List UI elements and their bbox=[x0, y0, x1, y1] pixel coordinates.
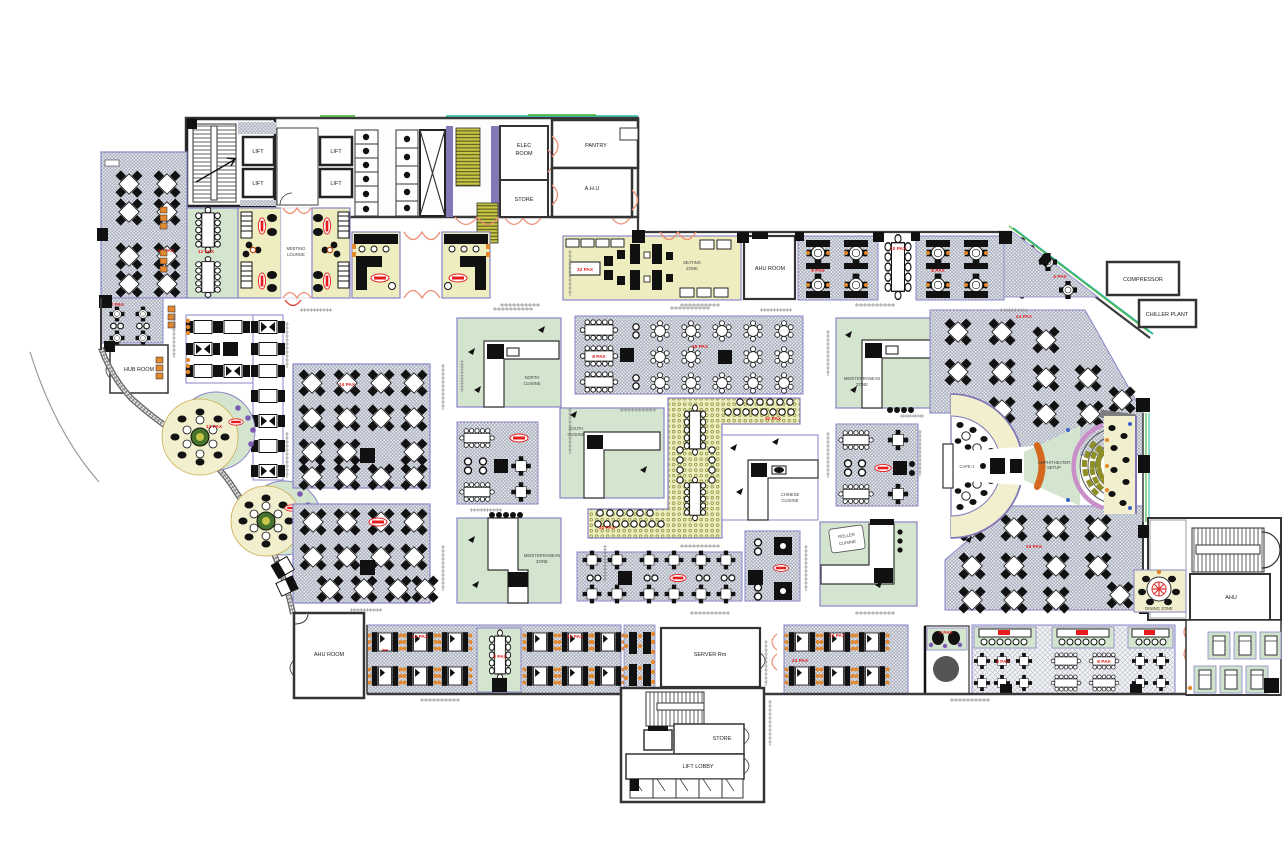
svg-text:SEATING: SEATING bbox=[683, 260, 701, 265]
svg-text:COMPRESSOR: COMPRESSOR bbox=[1123, 277, 1163, 283]
svg-text:8 PAX: 8 PAX bbox=[931, 268, 945, 274]
svg-text:32 PAX: 32 PAX bbox=[577, 267, 594, 273]
svg-text:MEDITERRANEAN: MEDITERRANEAN bbox=[844, 376, 880, 381]
svg-text:48 PAX: 48 PAX bbox=[692, 344, 709, 350]
svg-text:CAFE-1: CAFE-1 bbox=[960, 464, 976, 469]
svg-text:LIFT LOBBY: LIFT LOBBY bbox=[682, 764, 713, 770]
svg-text:32 PAX: 32 PAX bbox=[765, 416, 782, 422]
svg-text:12 PAX: 12 PAX bbox=[412, 634, 429, 640]
svg-text:PANTRY: PANTRY bbox=[585, 143, 607, 149]
svg-text:24 PAX: 24 PAX bbox=[1016, 314, 1033, 320]
svg-text:12 PAX: 12 PAX bbox=[567, 634, 584, 640]
svg-text:8 PAX: 8 PAX bbox=[493, 654, 507, 660]
svg-text:MEDITERRANEAN: MEDITERRANEAN bbox=[524, 553, 560, 558]
svg-text:24 PAX: 24 PAX bbox=[829, 633, 846, 639]
svg-text:HUB ROOM: HUB ROOM bbox=[124, 367, 155, 373]
svg-text:LIFT: LIFT bbox=[252, 181, 264, 187]
svg-text:8 PAX: 8 PAX bbox=[811, 268, 825, 274]
svg-text:8 PAX: 8 PAX bbox=[592, 354, 606, 360]
svg-text:4 PAX: 4 PAX bbox=[939, 630, 953, 636]
svg-text:ZONE: ZONE bbox=[686, 266, 698, 271]
svg-text:DINING ZONE: DINING ZONE bbox=[1145, 606, 1173, 611]
svg-text:24 PAX: 24 PAX bbox=[1026, 544, 1043, 550]
svg-text:ZONE: ZONE bbox=[856, 382, 868, 387]
svg-text:ELEC: ELEC bbox=[517, 143, 531, 149]
svg-text:ROOM: ROOM bbox=[515, 151, 533, 157]
svg-text:8 PAX: 8 PAX bbox=[1097, 659, 1111, 665]
svg-text:4 PAX: 4 PAX bbox=[1053, 274, 1067, 280]
svg-text:24 PAX: 24 PAX bbox=[792, 658, 809, 664]
svg-text:10 PAX: 10 PAX bbox=[890, 246, 907, 252]
svg-text:SETUP: SETUP bbox=[1047, 465, 1061, 470]
svg-text:24 PAX: 24 PAX bbox=[339, 382, 356, 388]
svg-text:32 PAX: 32 PAX bbox=[599, 525, 616, 531]
svg-text:A.H.U: A.H.U bbox=[585, 186, 600, 192]
svg-text:ZONE: ZONE bbox=[536, 559, 548, 564]
svg-text:SERVER Rm: SERVER Rm bbox=[694, 652, 727, 658]
svg-text:8 PAX: 8 PAX bbox=[996, 659, 1010, 665]
svg-text:STORE: STORE bbox=[713, 736, 732, 742]
svg-text:CHILLER PLANT: CHILLER PLANT bbox=[1146, 312, 1189, 318]
svg-text:CUISINE: CUISINE bbox=[782, 498, 799, 503]
svg-text:LIFT: LIFT bbox=[330, 149, 342, 155]
svg-text:CUISINE: CUISINE bbox=[524, 381, 541, 386]
svg-text:NORTH: NORTH bbox=[525, 375, 540, 380]
svg-text:12 PAX: 12 PAX bbox=[198, 249, 215, 255]
svg-text:AHU: AHU bbox=[1225, 595, 1237, 601]
svg-text:LIFT: LIFT bbox=[330, 181, 342, 187]
svg-text:12 PAX: 12 PAX bbox=[206, 424, 223, 430]
svg-text:STORE: STORE bbox=[515, 197, 534, 203]
svg-text:MEETING: MEETING bbox=[286, 246, 305, 251]
svg-text:AHU ROOM: AHU ROOM bbox=[755, 266, 786, 272]
svg-text:CHINESE: CHINESE bbox=[781, 492, 800, 497]
svg-text:AHU ROOM: AHU ROOM bbox=[314, 652, 345, 658]
svg-text:LOUNGE: LOUNGE bbox=[287, 252, 305, 257]
svg-text:LIFT: LIFT bbox=[252, 149, 264, 155]
